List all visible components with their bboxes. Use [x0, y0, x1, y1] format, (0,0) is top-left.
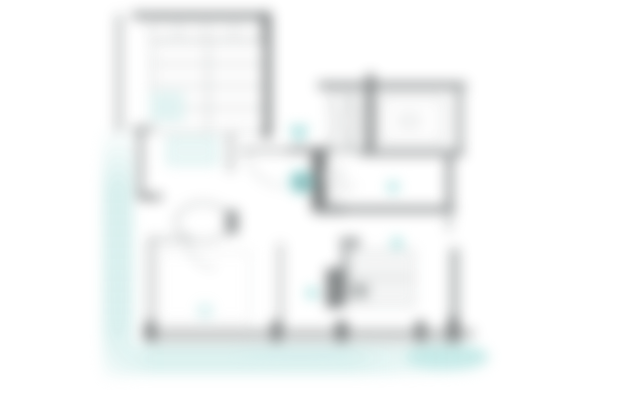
- wall-bottom-stub-3: [336, 321, 347, 341]
- floor-plan-svg: 1 2: [0, 0, 621, 412]
- wall-bottom-light: [150, 341, 462, 346]
- room-marker-2: 2: [324, 166, 344, 186]
- wall-bottom-stub-1: [146, 321, 155, 341]
- wall-top-right: [318, 82, 466, 89]
- wall-bath-left: [138, 132, 143, 200]
- door-shaft-bar: [312, 150, 326, 212]
- wall-right-gap: [446, 213, 452, 231]
- terrace-teal-band-bottom: [100, 344, 492, 374]
- entrance-arrow-icon: [288, 126, 310, 144]
- teal-area-topleft: [150, 92, 184, 122]
- wall-bottom-stub-4: [416, 321, 425, 341]
- wall-bottom-stub-5: [448, 318, 459, 342]
- wall-column-cap: [340, 238, 360, 244]
- wall-right-upper: [456, 86, 463, 154]
- toilet-symbol: [176, 203, 238, 241]
- closet-row-symbol: [150, 22, 264, 38]
- wall-top-left: [132, 12, 270, 19]
- wall-stub-left: [138, 194, 162, 200]
- room-dot-bottomleft: [197, 303, 213, 319]
- sink-symbol: [352, 284, 368, 298]
- room-dot-right-upper: [387, 181, 399, 193]
- wall-left-outer: [116, 14, 122, 132]
- room-marker-2-label: 2: [330, 170, 338, 184]
- blurred-floor-plan: 1 2: [0, 0, 621, 412]
- wardrobe-symbol: [330, 95, 365, 149]
- floor-plan-screenshot: 1 2: [0, 0, 621, 412]
- wall-right-mid: [446, 150, 453, 212]
- kitchen-counter-symbol: [326, 250, 414, 308]
- appliance-symbol: [326, 268, 344, 308]
- room-marker-1: 1: [289, 170, 313, 194]
- shower-symbol: [168, 138, 216, 164]
- wall-bottom-stub-2: [272, 321, 281, 341]
- door-arc-hall-left: [246, 148, 284, 186]
- room-marker-1-label: 1: [296, 174, 306, 192]
- room-dot-right-lower: [391, 237, 403, 249]
- wall-bath-right: [228, 126, 233, 172]
- wall-closet-right: [367, 74, 374, 154]
- wall-bottomleft-left: [148, 237, 154, 335]
- wall-hall-left: [240, 148, 290, 153]
- wall-kitchen-left: [278, 243, 283, 331]
- room-dot-kitchen: [306, 287, 318, 299]
- wall-lower-right: [315, 206, 455, 213]
- bed-symbol-topright: [380, 97, 444, 144]
